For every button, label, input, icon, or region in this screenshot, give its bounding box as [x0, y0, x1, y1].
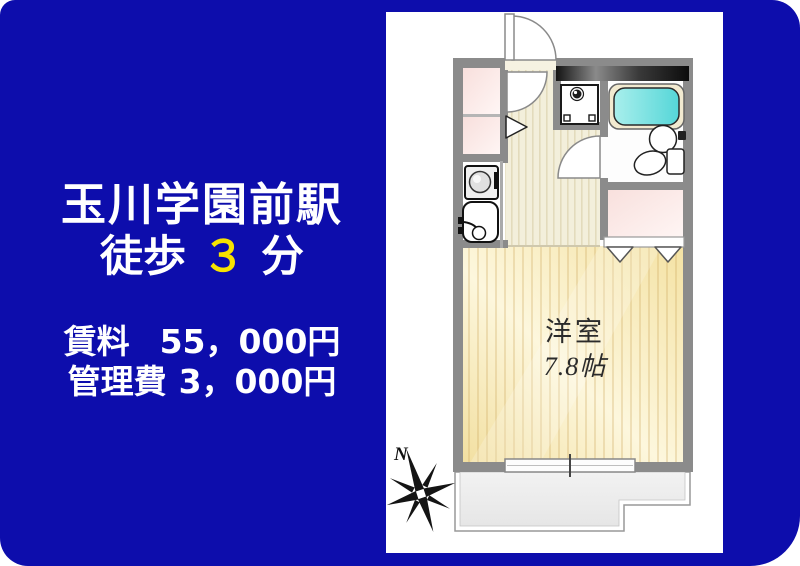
ad-canvas: 玉川学園前駅 徒歩 ３ 分 賃料 55，000円 管理費 3，000円 [0, 0, 800, 566]
washing-machine-icon [561, 85, 598, 124]
room-label: 洋室 [545, 317, 605, 347]
station-name: 玉川学園前駅 [22, 180, 382, 230]
station-block: 玉川学園前駅 徒歩 ３ 分 [22, 180, 382, 281]
kitchen-stove-icon [465, 166, 499, 199]
balcony [455, 472, 690, 531]
management-fee-line: 管理費 3，000円 [22, 362, 382, 402]
management-value: 3，000円 [179, 362, 337, 402]
floorplan-panel: 洋室 7.8帖 N [386, 12, 723, 553]
rent-line: 賃料 55，000円 [22, 322, 382, 362]
bathtub-icon [609, 84, 684, 129]
walk-minutes: ３ [202, 234, 245, 281]
rent-value: 55，000円 [160, 322, 341, 362]
compass-label: N [393, 444, 409, 465]
floorplan-drawing: 洋室 7.8帖 N [386, 12, 723, 553]
walk-prefix: 徒歩 [100, 234, 186, 281]
price-block: 賃料 55，000円 管理費 3，000円 [22, 322, 382, 403]
walk-line: 徒歩 ３ 分 [22, 234, 382, 281]
walk-suffix: 分 [261, 234, 304, 281]
management-label: 管理費 [68, 362, 167, 402]
kitchen-sink-icon [458, 202, 498, 242]
rent-label: 賃料 [64, 322, 130, 362]
dark-wall-bar [556, 66, 689, 81]
room-size: 7.8帖 [544, 352, 610, 381]
